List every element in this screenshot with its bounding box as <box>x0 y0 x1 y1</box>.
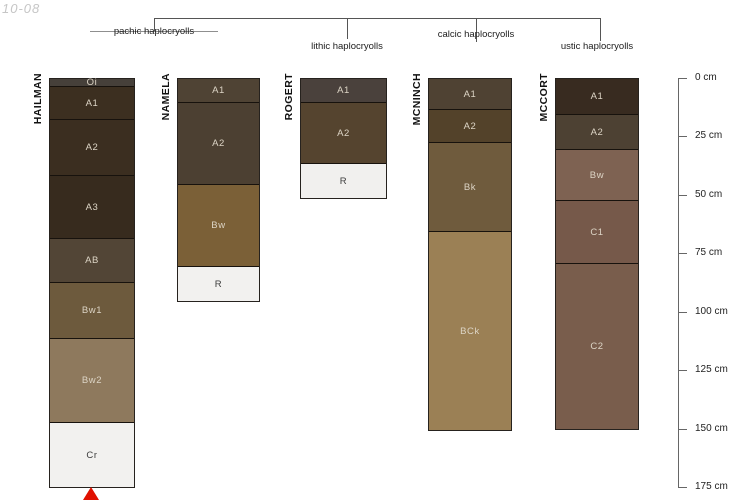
horizon-label: Bw <box>590 171 604 180</box>
red-triangle-marker <box>83 487 99 500</box>
soil-profile-chart: 10-08 pachic haplocryolls lithic haplocr… <box>0 0 750 500</box>
horizon-label: R <box>340 177 347 186</box>
series-label-mccort: MCCORT <box>538 73 550 121</box>
series-label-mcninch: MCNINCH <box>411 73 423 125</box>
depth-tick-label-125: 125 cm <box>695 364 728 376</box>
horizon-rogert-r: R <box>301 163 386 198</box>
depth-tick-75 <box>678 253 687 254</box>
horizon-mcninch-a1: A1 <box>429 79 511 109</box>
horizon-mcninch-bk: Bk <box>429 142 511 231</box>
horizon-namela-bw: Bw <box>178 184 259 266</box>
horizon-label: BCk <box>460 327 480 336</box>
horizon-namela-r: R <box>178 266 259 301</box>
depth-tick-50 <box>678 195 687 196</box>
horizon-hailman-a3: A3 <box>50 175 134 238</box>
soil-column-mccort: A1A2BwC1C2 <box>555 78 639 430</box>
horizon-label: A2 <box>464 122 477 131</box>
soil-column-hailman: OiA1A2A3ABBw1Bw2Cr <box>49 78 135 488</box>
soil-column-namela: A1A2BwR <box>177 78 260 302</box>
horizon-hailman-bw1: Bw1 <box>50 282 134 338</box>
horizon-label: Bk <box>464 183 476 192</box>
horizon-label: A1 <box>591 92 604 101</box>
horizon-label: A1 <box>86 99 99 108</box>
horizon-hailman-ab: AB <box>50 238 134 282</box>
tree-branch-lithic <box>347 18 348 39</box>
depth-tick-150 <box>678 429 687 430</box>
horizon-label: A2 <box>591 128 604 137</box>
series-label-namela: NAMELA <box>160 73 172 120</box>
horizon-label: Bw1 <box>82 306 102 315</box>
group-label-lithic: lithic haplocryolls <box>287 41 407 52</box>
series-label-rogert: ROGERT <box>283 73 295 120</box>
horizon-hailman-cr: Cr <box>50 422 134 487</box>
horizon-label: A2 <box>86 143 99 152</box>
horizon-mcninch-a2: A2 <box>429 109 511 142</box>
depth-tick-25 <box>678 136 687 137</box>
depth-tick-0 <box>678 78 687 79</box>
depth-tick-label-100: 100 cm <box>695 306 728 318</box>
horizon-label: R <box>215 280 222 289</box>
horizon-rogert-a2: A2 <box>301 102 386 163</box>
group-label-ustic: ustic haplocryolls <box>537 41 657 52</box>
tree-branch-ustic <box>600 18 601 41</box>
horizon-label: C2 <box>590 342 603 351</box>
horizon-mccort-bw: Bw <box>556 149 638 200</box>
horizon-mcninch-bck: BCk <box>429 231 511 430</box>
horizon-rogert-a1: A1 <box>301 79 386 102</box>
horizon-label: Cr <box>86 451 97 460</box>
horizon-label: Bw2 <box>82 376 102 385</box>
series-label-hailman: HAILMAN <box>32 73 44 124</box>
depth-tick-125 <box>678 370 687 371</box>
horizon-hailman-oi: Oi <box>50 79 134 86</box>
horizon-namela-a1: A1 <box>178 79 259 102</box>
soil-column-mcninch: A1A2BkBCk <box>428 78 512 431</box>
tree-root-line <box>154 18 600 19</box>
depth-tick-175 <box>678 487 687 488</box>
horizon-label: A2 <box>212 139 225 148</box>
horizon-label: A1 <box>212 86 225 95</box>
horizon-hailman-a1: A1 <box>50 86 134 119</box>
horizon-label: A3 <box>86 203 99 212</box>
horizon-label: A1 <box>464 90 477 99</box>
horizon-label: A2 <box>337 129 350 138</box>
horizon-mccort-a1: A1 <box>556 79 638 114</box>
group-label-calcic: calcic haplocryolls <box>416 29 536 40</box>
horizon-label: A1 <box>337 86 350 95</box>
horizon-mccort-c2: C2 <box>556 263 638 429</box>
depth-tick-label-25: 25 cm <box>695 130 722 142</box>
horizon-label: AB <box>85 256 99 265</box>
horizon-mccort-a2: A2 <box>556 114 638 149</box>
horizon-label: C1 <box>590 228 603 237</box>
horizon-mccort-c1: C1 <box>556 200 638 263</box>
horizon-namela-a2: A2 <box>178 102 259 184</box>
horizon-hailman-bw2: Bw2 <box>50 338 134 422</box>
depth-tick-label-0: 0 cm <box>695 72 717 84</box>
date-watermark: 10-08 <box>2 1 40 16</box>
depth-tick-label-175: 175 cm <box>695 481 728 493</box>
depth-axis-line <box>678 78 679 487</box>
horizon-hailman-a2: A2 <box>50 119 134 175</box>
group-label-pachic: pachic haplocryolls <box>94 26 214 37</box>
depth-tick-label-150: 150 cm <box>695 423 728 435</box>
depth-tick-label-50: 50 cm <box>695 189 722 201</box>
depth-tick-label-75: 75 cm <box>695 247 722 259</box>
soil-column-rogert: A1A2R <box>300 78 387 199</box>
depth-tick-100 <box>678 312 687 313</box>
horizon-label: Bw <box>211 221 225 230</box>
